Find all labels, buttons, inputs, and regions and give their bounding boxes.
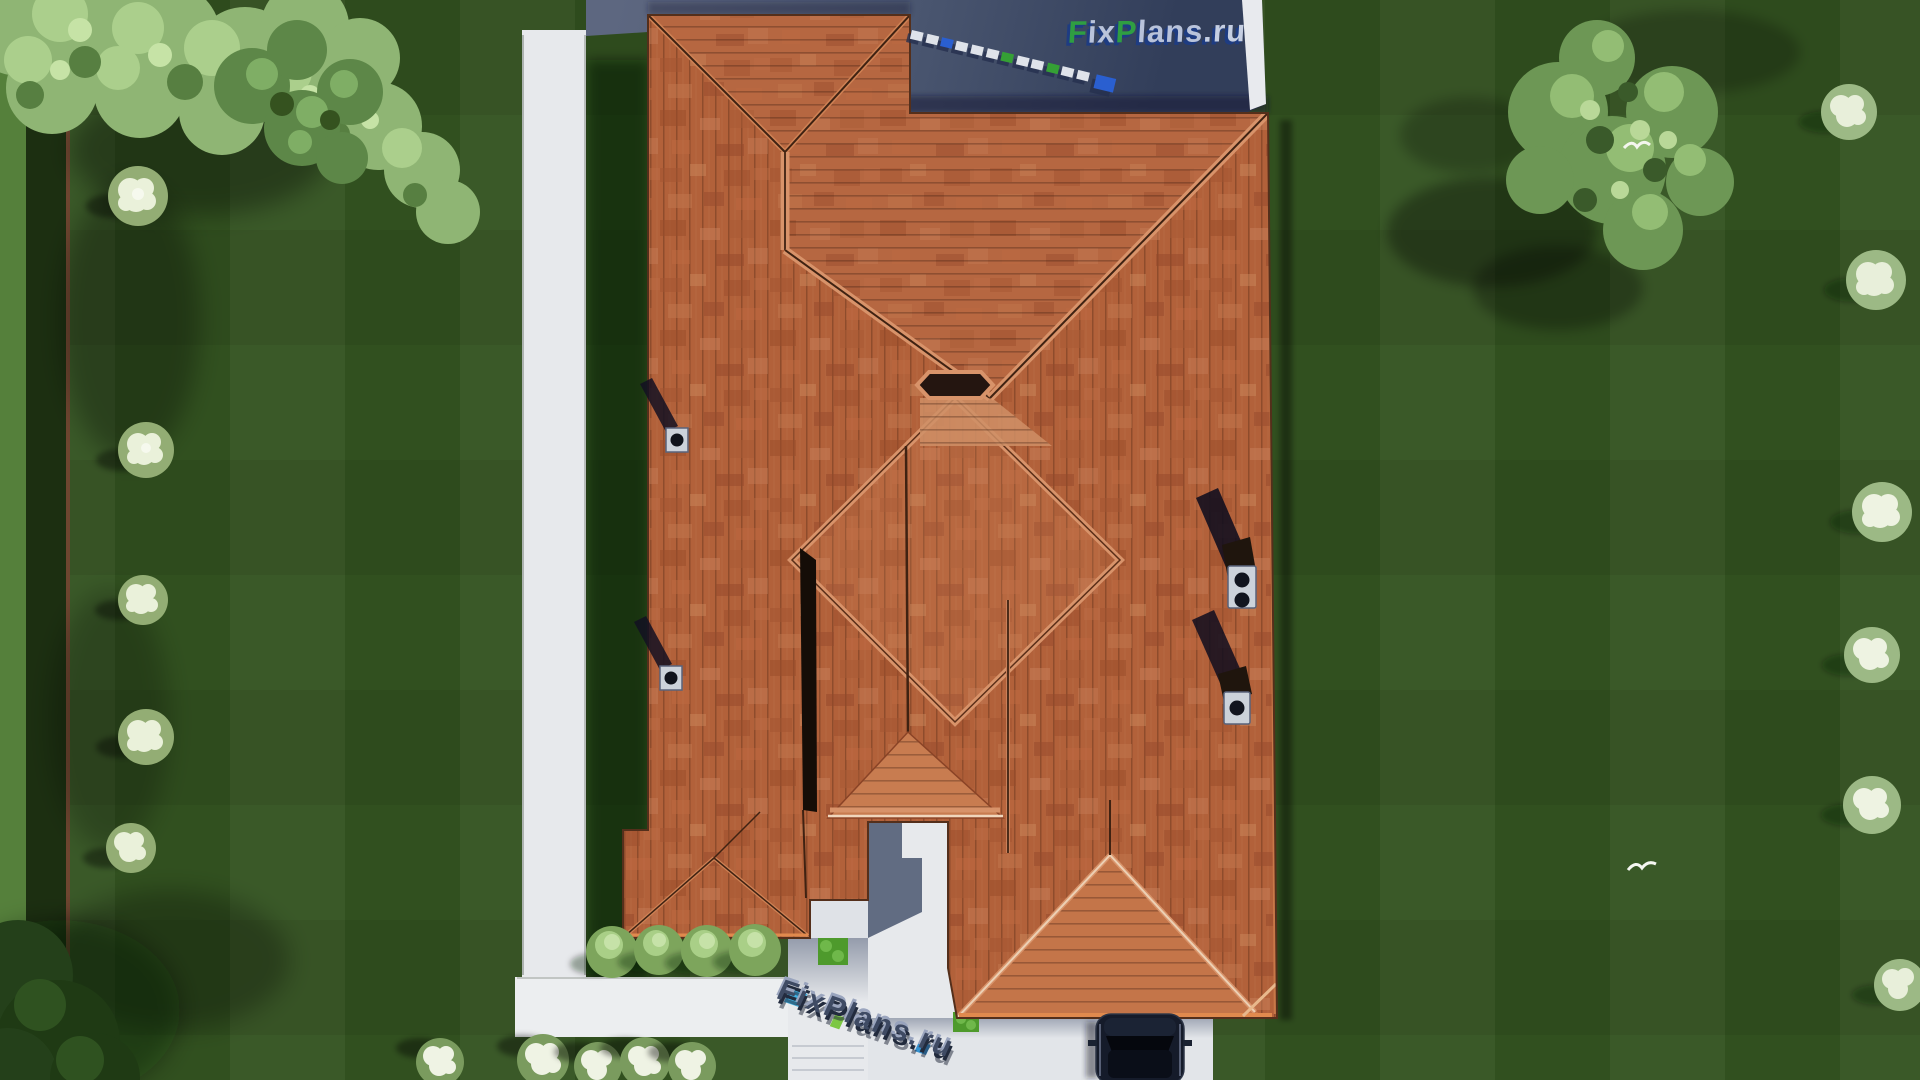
- site-logo: FixPlans.ru: [1067, 13, 1247, 51]
- side-path: [522, 30, 586, 980]
- logo-letters-lans: lans: [1136, 14, 1204, 50]
- logo-letter-f: F: [1067, 15, 1089, 50]
- roof-cupola: [917, 372, 993, 398]
- outer-grass-strip: [0, 0, 26, 1080]
- car-mirror-right: [1183, 1040, 1192, 1046]
- car-mirror-left: [1088, 1040, 1097, 1046]
- hedge: [26, 0, 66, 1080]
- car: [1086, 1014, 1192, 1080]
- logo-letter-p: P: [1115, 14, 1139, 49]
- left-boundary: [0, 0, 70, 1080]
- fence-line: [66, 0, 70, 1080]
- green-bushes-front-row: [570, 924, 781, 978]
- walkway-gap: [810, 900, 868, 938]
- car-roof-glass: [1108, 1050, 1172, 1078]
- site-plan-svg: [0, 0, 1920, 1080]
- car-windshield: [1106, 1036, 1174, 1052]
- house-roof: [623, 15, 1277, 1018]
- bottom-sidewalk: [515, 977, 790, 1037]
- logo-letters-ix: ix: [1087, 14, 1117, 49]
- aerial-site-render: FixPlans.ru FixPlans.ru: [0, 0, 1920, 1080]
- logo-domain-ru: .ru: [1203, 13, 1248, 48]
